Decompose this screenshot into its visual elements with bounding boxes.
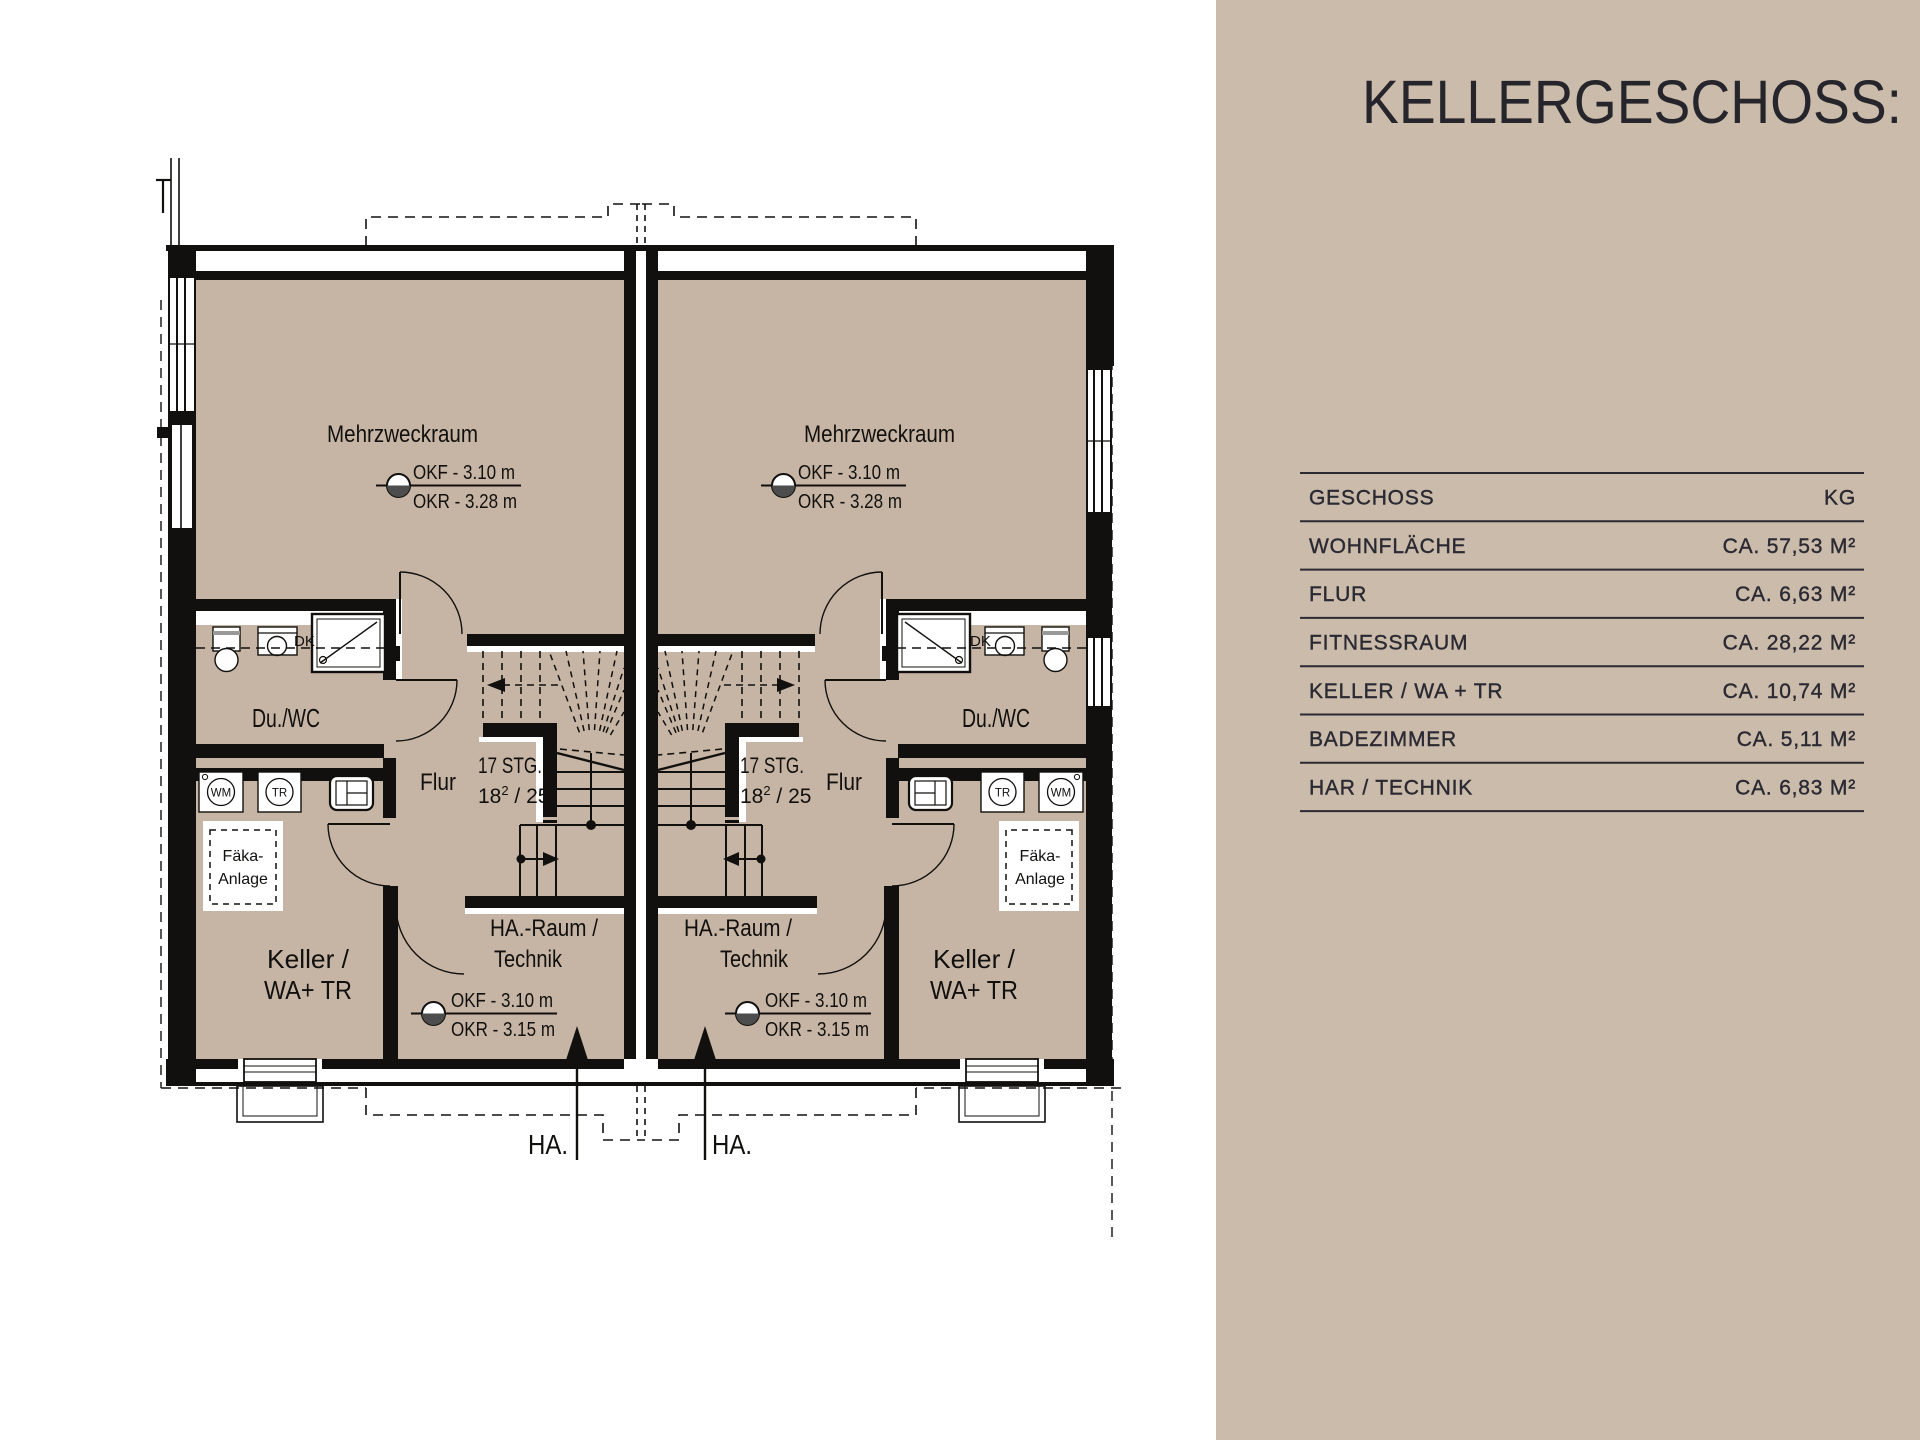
svg-text:HA.-Raum /: HA.-Raum /: [684, 915, 792, 942]
svg-text:Technik: Technik: [494, 946, 563, 973]
svg-text:OKF - 3.10 m: OKF - 3.10 m: [798, 462, 900, 484]
svg-text:Fäka-: Fäka-: [223, 848, 264, 865]
svg-text:Du./WC: Du./WC: [252, 703, 320, 733]
svg-text:HAR / TECHNIK: HAR / TECHNIK: [1309, 776, 1473, 799]
svg-text:CA. 6,63 M²: CA. 6,63 M²: [1735, 583, 1856, 606]
svg-text:WOHNFLÄCHE: WOHNFLÄCHE: [1309, 535, 1466, 558]
svg-text:Flur: Flur: [420, 769, 456, 796]
svg-text:KG: KG: [1824, 487, 1856, 510]
svg-text:BADEZIMMER: BADEZIMMER: [1309, 728, 1457, 751]
svg-text:OKF - 3.10 m: OKF - 3.10 m: [765, 990, 867, 1012]
svg-text:HA.: HA.: [712, 1129, 752, 1160]
svg-text:CA. 28,22 M²: CA. 28,22 M²: [1723, 632, 1856, 655]
svg-text:CA. 5,11 M²: CA. 5,11 M²: [1737, 728, 1856, 751]
svg-text:WM: WM: [211, 788, 231, 800]
svg-text:Keller /: Keller /: [933, 944, 1016, 974]
svg-text:WM: WM: [1051, 788, 1071, 800]
svg-text:Fäka-: Fäka-: [1020, 848, 1061, 865]
svg-text:KELLER / WA + TR: KELLER / WA + TR: [1309, 680, 1503, 703]
svg-text:FLUR: FLUR: [1309, 583, 1367, 606]
svg-text:Mehrzweckraum: Mehrzweckraum: [804, 421, 955, 448]
svg-text:CA. 57,53 M²: CA. 57,53 M²: [1723, 535, 1856, 558]
svg-text:Anlage: Anlage: [218, 871, 268, 888]
svg-text:182 / 25: 182 / 25: [478, 783, 549, 808]
svg-text:OKR - 3.15 m: OKR - 3.15 m: [765, 1019, 869, 1041]
svg-text:WA+ TR: WA+ TR: [264, 975, 352, 1005]
svg-text:WA+ TR: WA+ TR: [930, 975, 1018, 1005]
svg-text:Mehrzweckraum: Mehrzweckraum: [327, 421, 478, 448]
svg-text:OKR - 3.28 m: OKR - 3.28 m: [798, 491, 902, 513]
svg-text:FITNESSRAUM: FITNESSRAUM: [1309, 632, 1468, 655]
svg-text:Du./WC: Du./WC: [962, 703, 1030, 733]
svg-text:DK: DK: [970, 633, 991, 650]
svg-text:17 STG.: 17 STG.: [478, 753, 542, 778]
svg-text:OKR - 3.15 m: OKR - 3.15 m: [451, 1019, 555, 1041]
svg-text:182 / 25: 182 / 25: [740, 783, 811, 808]
svg-text:TR: TR: [272, 788, 287, 800]
svg-text:HA.-Raum /: HA.-Raum /: [490, 915, 598, 942]
svg-text:Anlage: Anlage: [1015, 871, 1065, 888]
svg-text:17 STG.: 17 STG.: [740, 753, 804, 778]
svg-text:CA. 6,83 M²: CA. 6,83 M²: [1735, 776, 1856, 799]
svg-text:DK: DK: [294, 633, 315, 650]
svg-text:KELLERGESCHOSS:: KELLERGESCHOSS:: [1362, 68, 1902, 136]
svg-text:Technik: Technik: [720, 946, 789, 973]
svg-text:CA. 10,74 M²: CA. 10,74 M²: [1723, 680, 1856, 703]
svg-text:OKR - 3.28 m: OKR - 3.28 m: [413, 491, 517, 513]
svg-text:GESCHOSS: GESCHOSS: [1309, 487, 1434, 510]
svg-text:HA.: HA.: [528, 1129, 568, 1160]
svg-text:Flur: Flur: [826, 769, 862, 796]
svg-text:Keller /: Keller /: [267, 944, 350, 974]
svg-text:TR: TR: [995, 788, 1010, 800]
svg-text:OKF - 3.10 m: OKF - 3.10 m: [451, 990, 553, 1012]
svg-text:OKF - 3.10 m: OKF - 3.10 m: [413, 462, 515, 484]
